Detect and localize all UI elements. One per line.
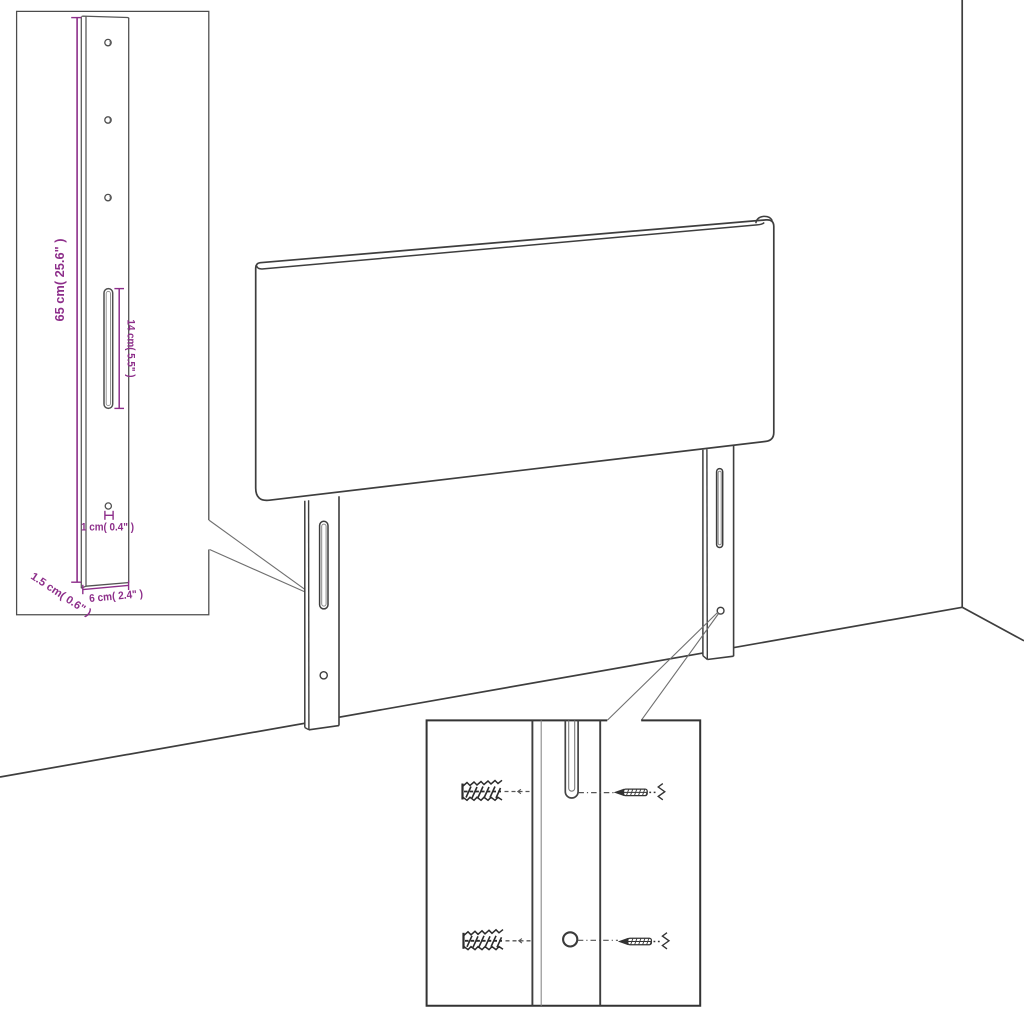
svg-text:65 cm( 25.6" ): 65 cm( 25.6" )	[52, 239, 67, 322]
svg-text:1 cm( 0.4" ): 1 cm( 0.4" )	[81, 522, 134, 534]
svg-text:14 cm( 5.5" ): 14 cm( 5.5" )	[125, 320, 137, 378]
